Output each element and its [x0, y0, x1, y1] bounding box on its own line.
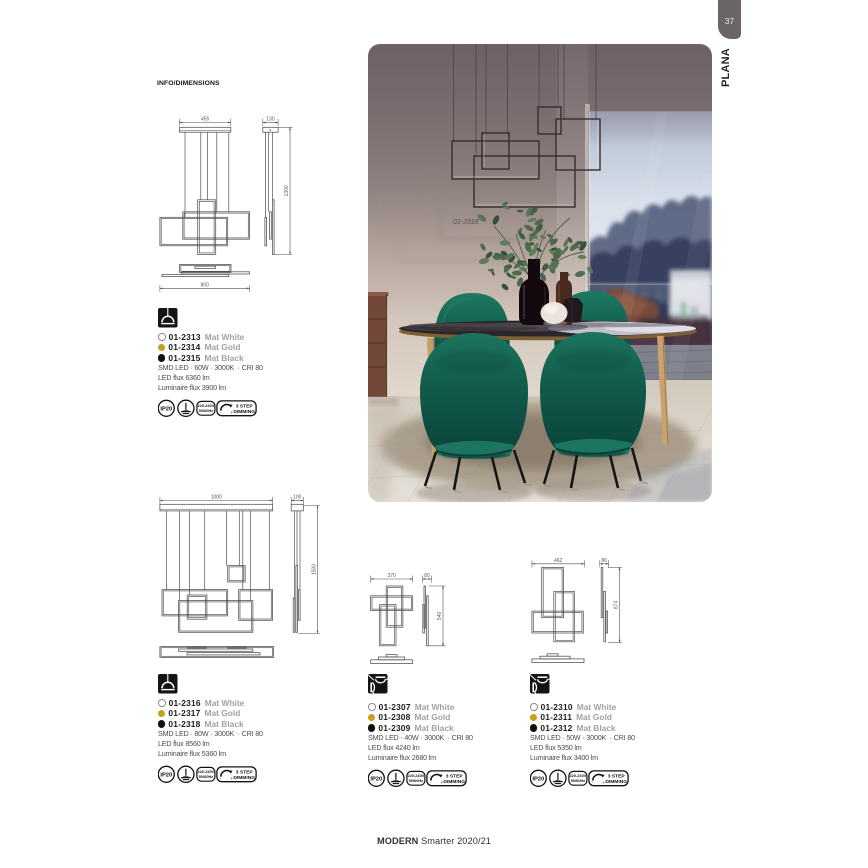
svg-text:540: 540: [437, 612, 443, 621]
svg-text:462: 462: [554, 558, 563, 564]
svg-text:50/60Hz: 50/60Hz: [199, 774, 214, 779]
svg-text:DIMMING: DIMMING: [233, 409, 255, 415]
svg-text:3 STEP: 3 STEP: [236, 769, 254, 775]
svg-text:3 STEP: 3 STEP: [236, 403, 254, 409]
svg-text:IP20: IP20: [370, 776, 382, 782]
svg-text:IP20: IP20: [160, 406, 172, 412]
svg-text:1500: 1500: [312, 564, 318, 575]
svg-text:800: 800: [201, 282, 210, 288]
svg-text:80: 80: [601, 558, 607, 564]
svg-text:50/60Hz: 50/60Hz: [199, 408, 214, 413]
svg-text:1300: 1300: [284, 185, 290, 196]
svg-text:IP20: IP20: [160, 772, 172, 778]
svg-text:3 STEP: 3 STEP: [608, 773, 626, 779]
svg-text:1000: 1000: [211, 495, 222, 501]
svg-text:3 STEP: 3 STEP: [446, 773, 464, 779]
svg-text:370: 370: [387, 573, 396, 579]
svg-text:DIMMING: DIMMING: [443, 779, 465, 785]
svg-text:IP20: IP20: [532, 776, 544, 782]
svg-text:80: 80: [424, 573, 430, 579]
svg-text:130: 130: [266, 117, 275, 123]
svg-text:50/60Hz: 50/60Hz: [409, 778, 424, 783]
svg-text:455: 455: [201, 117, 210, 123]
svg-text:01-2318: 01-2318: [453, 217, 480, 226]
svg-text:100: 100: [293, 495, 302, 501]
svg-text:50/60Hz: 50/60Hz: [571, 778, 586, 783]
svg-text:DIMMING: DIMMING: [605, 779, 627, 785]
svg-text:DIMMING: DIMMING: [233, 775, 255, 781]
svg-text:674: 674: [614, 601, 620, 610]
